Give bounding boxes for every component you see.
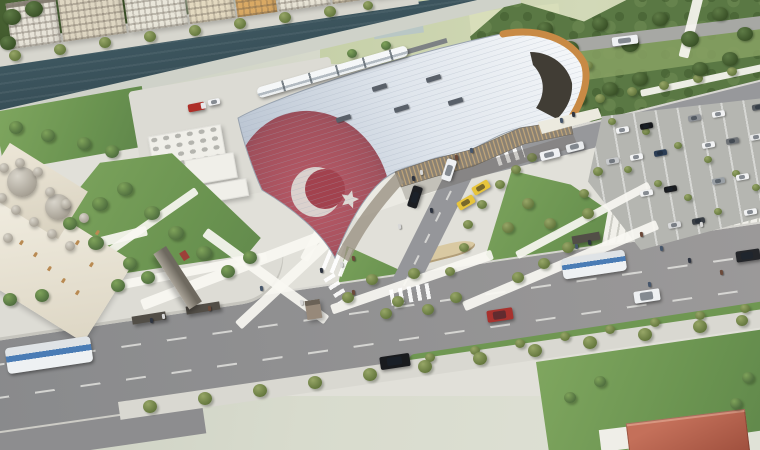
tree — [143, 400, 157, 413]
mosque-dome-small — [29, 217, 39, 227]
person — [700, 222, 703, 227]
parked-car — [752, 103, 760, 111]
vehicle-glass — [715, 112, 722, 117]
person — [470, 148, 473, 153]
tree — [605, 325, 615, 334]
tree — [41, 129, 55, 142]
vehicle-glass — [444, 164, 453, 176]
tree — [684, 194, 692, 201]
tree — [515, 339, 525, 348]
tree — [722, 52, 738, 66]
person — [340, 262, 343, 267]
tree — [727, 67, 737, 76]
tree — [654, 180, 662, 187]
person — [162, 314, 165, 319]
tree — [742, 372, 754, 383]
vehicle-glass — [705, 143, 712, 148]
vehicle-glass — [715, 179, 722, 184]
person — [150, 318, 153, 323]
person — [352, 290, 355, 295]
person — [398, 224, 401, 229]
aerial-rendering-canvas: Aerial render of a modern rail terminal … — [0, 0, 760, 450]
person — [560, 118, 563, 123]
vehicle-glass — [729, 139, 736, 144]
tree — [168, 226, 184, 240]
person — [260, 286, 263, 291]
person — [430, 208, 433, 213]
tree — [652, 12, 668, 26]
tree — [704, 156, 712, 163]
mosque-dome-small — [11, 205, 21, 215]
tree — [736, 315, 748, 326]
vehicle-glass — [643, 124, 650, 129]
tree — [473, 352, 487, 365]
tree — [198, 392, 212, 405]
tree — [730, 398, 742, 409]
person — [208, 306, 211, 311]
tree — [63, 217, 77, 230]
tree — [392, 296, 404, 307]
tree — [632, 72, 648, 86]
person — [412, 176, 415, 181]
vehicle-glass — [619, 128, 626, 133]
vehicle-glass — [410, 191, 419, 203]
tree — [111, 279, 125, 292]
vehicle-glass — [492, 310, 506, 319]
tree — [3, 293, 17, 306]
tree — [712, 7, 728, 21]
tree — [693, 320, 707, 333]
mosque-dome-small — [47, 229, 57, 239]
mosque-dome-small — [3, 233, 13, 243]
tree — [25, 1, 43, 17]
tree — [418, 360, 432, 373]
vehicle-glass — [755, 105, 760, 110]
vehicle-glass — [657, 151, 664, 156]
tree — [99, 37, 111, 48]
vehicle-glass — [544, 151, 555, 159]
person — [720, 270, 723, 275]
vehicle-glass — [643, 191, 650, 196]
tree — [77, 137, 91, 150]
tree — [144, 31, 156, 42]
person — [320, 268, 323, 273]
tree — [740, 304, 750, 313]
tree — [363, 1, 373, 10]
tree — [638, 328, 652, 341]
vehicle-glass — [633, 155, 640, 160]
tree — [560, 332, 570, 341]
vehicle-glass — [671, 223, 678, 228]
person — [588, 240, 591, 245]
tree — [9, 121, 23, 134]
person — [352, 256, 355, 261]
mosque-dome-small — [15, 158, 25, 168]
person — [688, 258, 691, 263]
person — [455, 155, 458, 160]
mosque-dome-small — [61, 199, 71, 209]
tree — [363, 368, 377, 381]
person — [572, 112, 575, 117]
tree — [105, 145, 119, 158]
tree — [253, 384, 267, 397]
tree — [9, 50, 21, 61]
tree — [54, 44, 66, 55]
tree — [627, 87, 637, 96]
truck-cab — [200, 102, 206, 109]
tree — [308, 376, 322, 389]
tree — [92, 197, 108, 211]
tree — [324, 6, 336, 17]
tree — [141, 271, 155, 284]
mosque-dome-small — [33, 167, 43, 177]
vehicle-glass — [747, 210, 754, 215]
tree — [714, 208, 722, 215]
person — [640, 232, 643, 237]
tree — [692, 62, 708, 76]
vehicle-glass — [569, 144, 579, 151]
tree — [35, 289, 49, 302]
tree — [422, 304, 434, 315]
vehicle-glass — [617, 37, 631, 44]
tree — [144, 206, 160, 220]
tree — [380, 308, 392, 319]
tree — [659, 81, 669, 90]
tree — [681, 31, 699, 47]
vehicle-glass — [667, 187, 674, 192]
tree — [564, 392, 576, 403]
person — [660, 246, 663, 251]
vehicle-glass — [386, 356, 402, 366]
vehicle-glass — [739, 175, 746, 180]
mosque-dome-small — [65, 241, 75, 251]
mosque-dome-small — [79, 213, 89, 223]
vehicle-glass — [609, 159, 616, 164]
vehicle-glass — [691, 116, 698, 121]
tree — [3, 9, 21, 25]
person — [300, 300, 303, 305]
tree — [624, 166, 632, 173]
tree — [737, 27, 753, 41]
person — [575, 244, 578, 249]
tree — [450, 292, 462, 303]
tree — [117, 182, 133, 196]
tree — [594, 376, 606, 387]
person — [648, 282, 651, 287]
vehicle-glass — [639, 291, 653, 300]
tree — [752, 184, 760, 191]
tree — [0, 36, 16, 50]
tree — [123, 257, 137, 270]
tree — [674, 142, 682, 149]
person — [420, 170, 423, 175]
vehicle-glass — [753, 135, 760, 140]
tree — [528, 344, 542, 357]
tree — [88, 236, 104, 250]
mosque-dome-small — [45, 187, 55, 197]
kiosk — [305, 299, 323, 320]
tree — [583, 336, 597, 349]
vehicle-glass — [210, 100, 217, 105]
tree — [650, 318, 660, 327]
tree — [695, 311, 705, 320]
vehicle-glass — [741, 251, 754, 260]
